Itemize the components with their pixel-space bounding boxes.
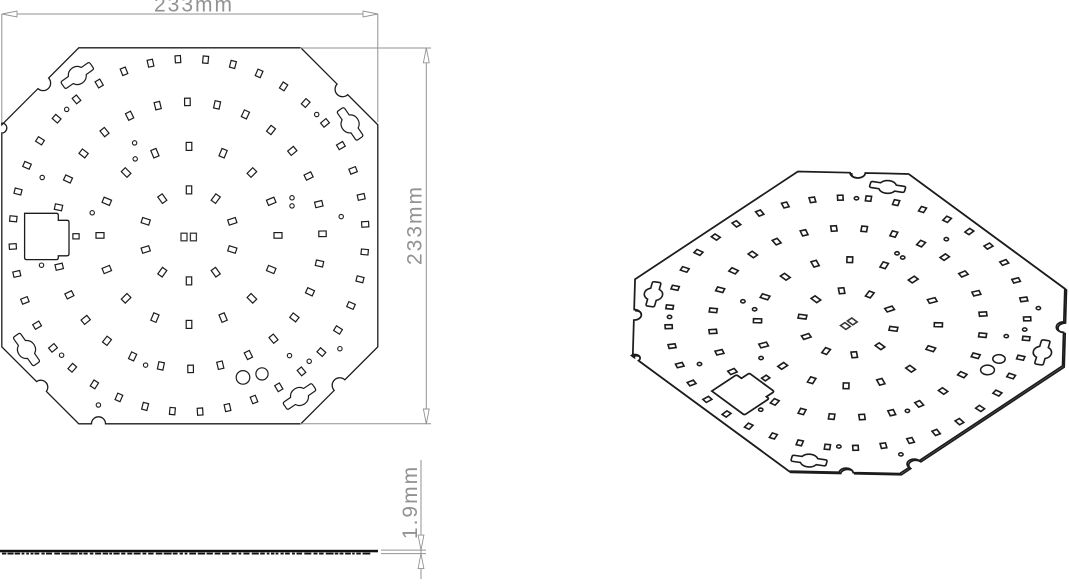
svg-text:1.9mm: 1.9mm: [399, 465, 422, 539]
svg-text:233mm: 233mm: [154, 0, 234, 17]
svg-text:233mm: 233mm: [404, 185, 427, 265]
